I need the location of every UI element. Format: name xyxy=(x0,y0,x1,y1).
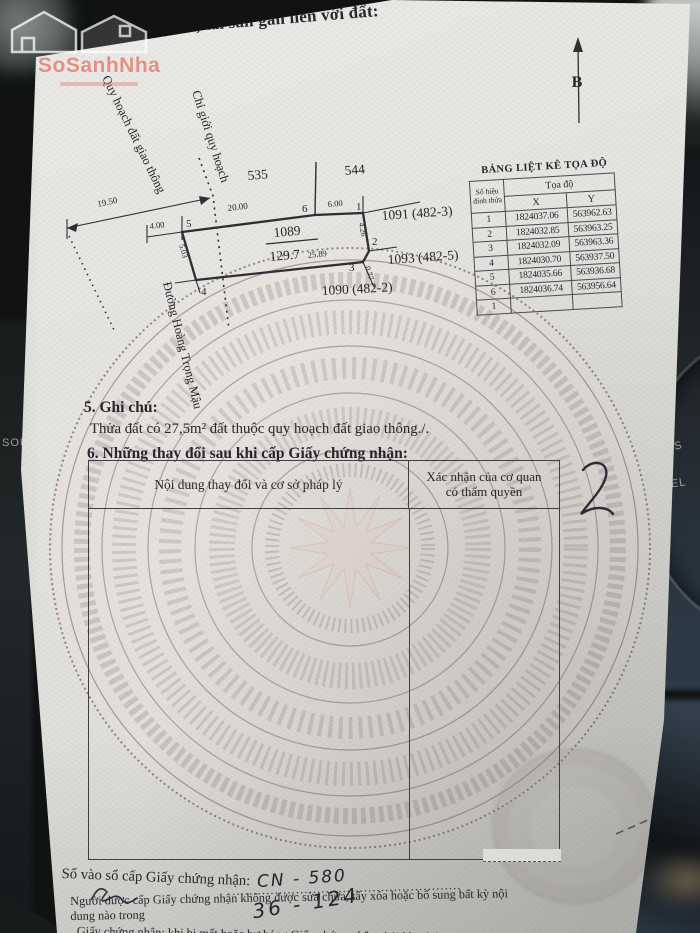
dash-mark xyxy=(616,820,648,834)
pen-marks xyxy=(0,0,700,933)
watermark-tagline xyxy=(60,82,138,86)
background-blob-brown xyxy=(640,850,700,910)
certificate-page: 4. Sơ đồ thửa đất, tài sản gắn liền với … xyxy=(0,0,700,933)
watermark-brand: SoSanhNha xyxy=(38,54,160,78)
handwritten-scribble xyxy=(92,889,137,903)
handwritten-2-mark xyxy=(581,463,613,514)
house-icon xyxy=(2,8,172,58)
sosanhnha-watermark: SoSanhNha xyxy=(2,8,172,98)
photo-of-land-certificate: SOUR ES CEL 4. Sơ đồ thửa đất, tài sản g… xyxy=(0,0,700,933)
